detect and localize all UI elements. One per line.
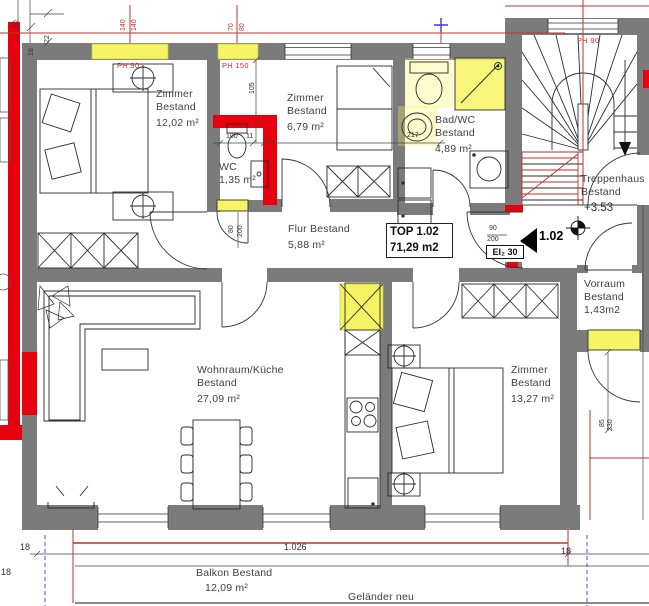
dim-140-a: 140 xyxy=(120,19,127,31)
unit-number: 1.02 xyxy=(539,229,563,243)
room-area: 1,43m2 xyxy=(584,304,625,317)
dim-vorraum-230: 230 xyxy=(607,419,614,431)
chair-icon xyxy=(240,483,252,501)
dim-105: 105 xyxy=(249,82,256,94)
vent-marks xyxy=(48,486,94,508)
room-name: Flur Bestand xyxy=(288,223,350,236)
dim-18: 18 xyxy=(28,48,35,56)
room-area: 6,79 m² xyxy=(287,121,327,134)
room-name: Bad/WC xyxy=(435,114,475,127)
room-name: Zimmer xyxy=(287,92,327,105)
room-label-wohnraum: Wohnraum/Küche Bestand 27,09 m² xyxy=(197,364,284,405)
staircase-new-red xyxy=(522,152,578,205)
room-label-bad: Bad/WC Bestand 4,89 m² xyxy=(435,114,475,155)
dim-18-right: 18 xyxy=(561,546,571,556)
pillow-icon xyxy=(42,94,80,132)
level-marker-icon xyxy=(566,216,590,240)
room-label-treppenhaus: Treppenhaus Bestand xyxy=(581,173,645,199)
door-zimmer3 xyxy=(413,282,459,328)
room-label-vorraum: Vorraum Bestand 1,43m2 xyxy=(584,278,625,316)
room-name: Treppenhaus xyxy=(581,173,645,186)
room-name: Wohnraum/Küche xyxy=(197,364,284,377)
door-zimmer2 xyxy=(282,159,330,207)
room-label-zimmer3: Zimmer Bestand 13,27 m² xyxy=(511,364,554,405)
room-type: Bestand xyxy=(584,291,625,304)
room-type: Bestand xyxy=(156,101,199,114)
room-label-zimmer2: Zimmer Bestand 6,79 m² xyxy=(287,92,327,133)
door-vorraum-corridor xyxy=(588,350,640,402)
room-area: 4,89 m² xyxy=(435,143,475,156)
plant-icon xyxy=(38,286,74,328)
unit-info-box: TOP 1.02 71,29 m2 xyxy=(386,223,453,258)
room-name: WC xyxy=(219,161,256,174)
pillow-icon xyxy=(396,421,434,459)
ph150-label: PH 150 xyxy=(222,61,249,70)
furniture-zimmer1 xyxy=(38,64,173,268)
room-name: Zimmer xyxy=(511,364,554,377)
chair-icon xyxy=(181,483,193,501)
dim-1026: 1.026 xyxy=(284,542,307,552)
room-area: 12,09 m² xyxy=(196,582,272,595)
room-label-balkon: Balkon Bestand 12,09 m² xyxy=(196,567,272,595)
dim-22: 22 xyxy=(44,35,51,43)
room-type: Bestand xyxy=(287,105,327,118)
dim-80: 80 xyxy=(239,23,246,31)
dim-wc-door-200: 200 xyxy=(237,225,244,237)
room-area: 13,27 m² xyxy=(511,393,554,406)
room-name: Vorraum xyxy=(584,278,625,291)
chair-icon xyxy=(240,455,252,473)
ph90-stairs-label: PH 90 xyxy=(577,36,599,45)
fire-door-class: EI₂ 30 xyxy=(486,245,524,259)
chair-icon xyxy=(181,427,193,445)
dim-wc-door-80: 80 xyxy=(228,225,235,233)
gelaender-note: Geländer neu xyxy=(348,591,414,604)
double-bed-icon xyxy=(40,89,148,193)
dim-vorraum-85: 85 xyxy=(599,419,606,427)
pillow-icon xyxy=(45,143,81,179)
room-label-flur: Flur Bestand 5,88 m² xyxy=(288,223,350,252)
dim-entry-90: 90 xyxy=(489,225,497,232)
room-label-zimmer1: Zimmer Bestand 12,02 m² xyxy=(156,88,199,129)
wardrobe-icon xyxy=(327,166,390,197)
dim-18-side: 18 xyxy=(1,567,11,577)
room-area: 27,09 m² xyxy=(197,393,284,406)
coffee-table-icon xyxy=(102,349,148,370)
door-zimmer1 xyxy=(150,212,207,269)
room-area: 12,02 m² xyxy=(156,117,199,130)
room-name: Balkon Bestand xyxy=(196,567,272,580)
dim-217: 217 xyxy=(407,132,419,139)
room-type: Bestand xyxy=(581,186,645,199)
dining-table-icon xyxy=(193,420,240,509)
survey-cross-icon xyxy=(434,18,448,32)
door-treppenhaus-vorraum xyxy=(585,223,632,270)
unit-label: TOP 1.02 xyxy=(390,225,452,241)
ph90-left-label: PH 90 xyxy=(117,61,139,70)
chair-icon xyxy=(181,455,193,473)
dim-11: 11 xyxy=(246,133,253,140)
dim-18-left: 18 xyxy=(20,542,30,552)
dim-entry-200: 200 xyxy=(487,236,499,243)
door-wohnraum xyxy=(222,282,267,327)
sofa-bed-icon xyxy=(337,66,392,150)
room-name: Zimmer xyxy=(156,88,199,101)
dim-100: 100 xyxy=(226,133,238,140)
door-bad xyxy=(433,170,470,207)
room-type: Bestand xyxy=(435,127,475,140)
unit-area: 71,29 m2 xyxy=(390,241,452,257)
dim-20: 20 xyxy=(13,20,20,28)
pillow-icon xyxy=(393,372,432,411)
room-label-wc: WC 1,35 m² xyxy=(219,161,256,187)
walls xyxy=(22,18,649,530)
sofa-l-icon xyxy=(44,291,200,421)
level-value: +3.53 xyxy=(584,202,613,214)
room-type: Bestand xyxy=(197,377,284,390)
floorplan-page: Zimmer Bestand 12,02 m² Zimmer Bestand 6… xyxy=(0,0,649,606)
dim-70: 70 xyxy=(228,23,235,31)
room-area: 1,35 m² xyxy=(219,174,256,187)
floorplan-canvas xyxy=(0,0,649,606)
dim-140-b: 140 xyxy=(131,19,138,31)
chair-icon xyxy=(240,427,252,445)
room-type: Bestand xyxy=(511,377,554,390)
furniture-zimmer2 xyxy=(327,66,392,197)
room-area: 5,88 m² xyxy=(288,239,350,252)
